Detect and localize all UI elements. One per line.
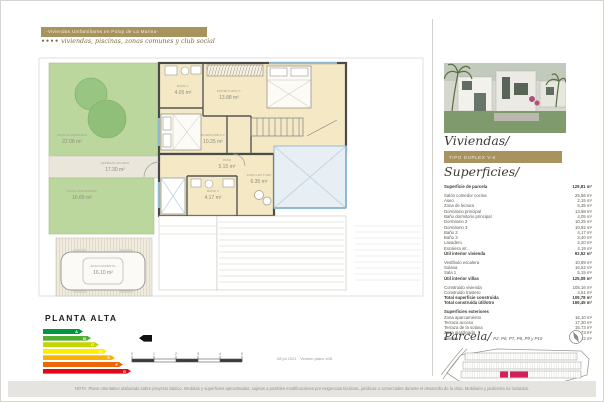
parcela-plots: P2, P6, P7, P8, P9 y P10 xyxy=(493,336,542,341)
room-area: 16.10 m² xyxy=(93,270,113,276)
tree-icon xyxy=(88,100,126,138)
room-label: DORMITORIO 2 xyxy=(201,133,225,137)
double-height-void xyxy=(274,146,346,208)
scale-tick: 3 xyxy=(197,352,199,356)
energy-bar-D: D xyxy=(43,349,107,354)
highlighted-plot xyxy=(500,372,508,378)
shower-box xyxy=(161,178,185,214)
room-area: 17.30 m² xyxy=(105,167,125,173)
scale-tick: 0 xyxy=(131,352,133,356)
room-area: 13.88 m² xyxy=(219,95,239,101)
room-label: ZONA AJARDINADA xyxy=(57,133,87,137)
render-photo xyxy=(444,63,566,133)
scale-tick: 4 xyxy=(219,352,221,356)
room-area: 16.65 m² xyxy=(72,195,92,201)
room-label: PASO xyxy=(223,158,232,162)
superficies-table: Superficie de parcela129,81 m²Salón come… xyxy=(444,184,592,345)
room-label: TERRAZA ACCESO xyxy=(101,161,131,165)
parcela-heading: Parcela/ P2, P6, P7, P8, P9 y P10 xyxy=(444,329,542,343)
garden-area-bottom xyxy=(49,178,154,234)
header-title: -Viviendas Unifamiliares en Polop de La … xyxy=(46,29,158,34)
superficies-row: Útil interior villas125,08 m² xyxy=(444,276,592,281)
room-label: DORMITORIO P. xyxy=(217,89,242,93)
viviendas-title: Viviendas/ xyxy=(444,133,509,148)
divider xyxy=(432,19,433,376)
room-label: BAÑO 2 xyxy=(207,188,219,193)
solana-pergola xyxy=(159,216,346,290)
energy-bar-C: C xyxy=(43,342,99,347)
room-label: APARCAMIENTO xyxy=(90,264,116,268)
neighbour-pergola xyxy=(355,226,421,280)
energy-bar-F: F xyxy=(43,362,123,367)
energy-bar-B: B xyxy=(43,336,91,341)
bed-icon xyxy=(161,114,201,150)
room-label: BAÑO 1 xyxy=(177,83,189,88)
footer-note: NOTA: Plano orientativo elaborado sobre … xyxy=(8,381,596,397)
scale-tick: 1 xyxy=(153,352,155,356)
room-area: 4.05 m² xyxy=(175,90,192,96)
room-area: 10.25 m² xyxy=(203,139,223,145)
superficies-row: Superficie de parcela129,81 m² xyxy=(444,184,592,189)
parcela-title: Parcela/ xyxy=(444,329,491,343)
bed-icon xyxy=(267,66,311,108)
compass-icon xyxy=(567,328,585,346)
superficies-row: Útil interior vivienda92,52 m² xyxy=(444,251,592,256)
room-area: 6.35 m² xyxy=(251,179,268,185)
version-note: 08 jul 2021 · Versión plano v06 xyxy=(277,356,332,361)
room-area: 4.17 m² xyxy=(205,195,222,201)
header-subtitle: ••••viviendas, piscinas, zonas comunes y… xyxy=(41,38,215,45)
energy-bar-E: E xyxy=(43,355,115,360)
scale-tick: 5 xyxy=(241,352,243,356)
scale-tick: 2 xyxy=(175,352,177,356)
access-terrace xyxy=(49,156,159,178)
room-area: 5.15 m² xyxy=(219,164,236,170)
superficies-title: Superficies/ xyxy=(444,164,519,179)
plan-title: PLANTA ALTA xyxy=(45,313,117,323)
plan-sheet: -Viviendas Unifamiliares en Polop de La … xyxy=(0,0,604,402)
highlighted-plot xyxy=(510,372,528,378)
room-area: 22.08 m² xyxy=(62,139,82,145)
energy-bar-G: G xyxy=(43,369,131,374)
header-title-bar: -Viviendas Unifamiliares en Polop de La … xyxy=(41,27,207,37)
scale-bar: 0 1 2 3 4 5 xyxy=(131,352,273,366)
room-label: ZONA LECTURA xyxy=(247,173,272,177)
energy-bar-A: A xyxy=(43,329,83,334)
room-label: ZONA AJARDINADA xyxy=(67,189,97,193)
wardrobe xyxy=(207,65,263,76)
superficies-row: Total construida útil/otro169,45 m² xyxy=(444,300,592,305)
brand-dots-icon: •••• xyxy=(41,38,59,45)
floor-plan-drawing: ZONA AJARDINADA 22.08 m² TERRAZA ACCESO … xyxy=(37,56,427,311)
tipo-badge: Tipo duplex v-6 xyxy=(444,151,562,163)
